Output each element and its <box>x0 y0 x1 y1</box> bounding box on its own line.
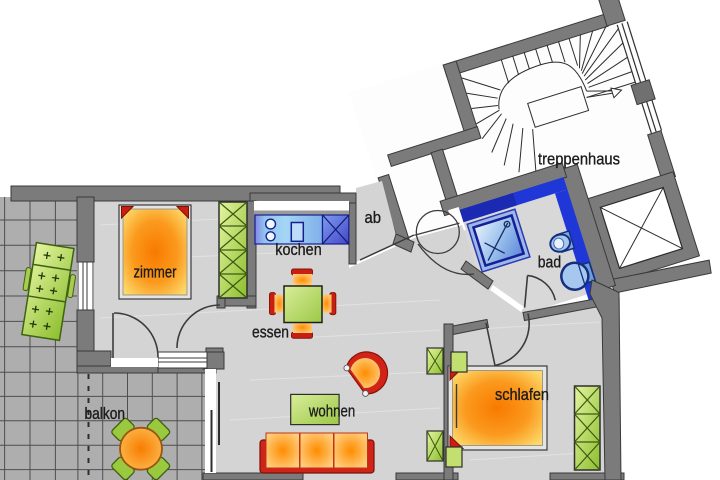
svg-text:balkon: balkon <box>85 404 126 423</box>
svg-text:ab: ab <box>365 208 382 227</box>
svg-text:schlafen: schlafen <box>495 385 549 404</box>
svg-text:kochen: kochen <box>275 240 321 259</box>
svg-text:treppenhaus: treppenhaus <box>538 150 620 169</box>
svg-text:wohnen: wohnen <box>308 402 355 421</box>
svg-text:zimmer: zimmer <box>134 263 177 282</box>
svg-text:essen: essen <box>252 323 289 342</box>
svg-text:bad: bad <box>538 253 561 272</box>
